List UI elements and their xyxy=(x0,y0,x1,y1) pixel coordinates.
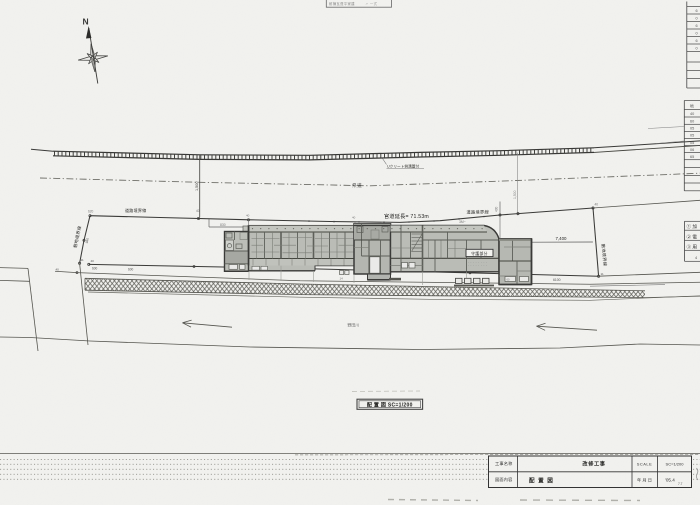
svg-text:60: 60 xyxy=(690,120,694,124)
svg-text:6: 6 xyxy=(696,9,698,13)
svg-text:耐棟瓦葺平家建: 耐棟瓦葺平家建 xyxy=(329,1,355,6)
svg-text:830: 830 xyxy=(220,223,226,227)
svg-text:05: 05 xyxy=(690,134,694,138)
svg-text:SCALE: SCALE xyxy=(637,461,653,466)
svg-text:SC=1/200: SC=1/200 xyxy=(666,462,685,467)
svg-text:道路境界線: 道路境界線 xyxy=(125,207,147,213)
svg-text:40: 40 xyxy=(352,216,356,220)
svg-text:6: 6 xyxy=(696,39,698,43)
svg-text:① 加: ① 加 xyxy=(687,223,698,230)
svg-text:工事名称: 工事名称 xyxy=(495,460,513,467)
svg-text:7.7: 7.7 xyxy=(678,482,683,486)
svg-text:図面内容: 図面内容 xyxy=(495,476,513,483)
svg-text:Uクリート側溝蓋付: Uクリート側溝蓋付 xyxy=(387,164,419,169)
svg-text:3M~: 3M~ xyxy=(459,220,466,224)
svg-text:② 電: ② 電 xyxy=(687,233,698,240)
svg-text:06: 06 xyxy=(690,148,694,152)
svg-text:600: 600 xyxy=(128,268,134,272)
svg-text:6100: 6100 xyxy=(553,278,561,282)
svg-text:430: 430 xyxy=(495,206,499,212)
svg-text:野田川: 野田川 xyxy=(348,322,360,327)
svg-text:05: 05 xyxy=(690,141,694,145)
svg-text:14: 14 xyxy=(340,277,344,281)
svg-text:年 月 日: 年 月 日 xyxy=(637,477,652,484)
svg-text:1,500: 1,500 xyxy=(513,190,517,199)
svg-text:600: 600 xyxy=(92,266,98,270)
svg-text:40: 40 xyxy=(56,267,60,271)
svg-text:配 置 図 SC=1/200: 配 置 図 SC=1/200 xyxy=(367,401,413,408)
svg-text:0: 0 xyxy=(696,32,698,36)
svg-text:'05.4: '05.4 xyxy=(665,477,675,482)
svg-text:40: 40 xyxy=(595,202,599,206)
svg-text:11: 11 xyxy=(81,258,84,262)
svg-text:0: 0 xyxy=(696,47,698,51)
svg-text:05: 05 xyxy=(690,127,694,131)
svg-text:改修工事: 改修工事 xyxy=(582,460,605,468)
svg-text:65: 65 xyxy=(690,155,694,159)
svg-text:県道: 県道 xyxy=(352,182,362,189)
svg-text:守護部分: 守護部分 xyxy=(471,251,488,256)
svg-text:配 置 図: 配 置 図 xyxy=(529,477,554,485)
svg-text:6: 6 xyxy=(696,24,698,28)
svg-text:N: N xyxy=(83,17,89,27)
svg-text:③ 用: ③ 用 xyxy=(687,243,698,250)
svg-text:40: 40 xyxy=(690,112,694,116)
svg-text:道路境界線: 道路境界線 xyxy=(467,209,490,216)
svg-text:11: 11 xyxy=(601,272,604,276)
svg-text:40: 40 xyxy=(246,214,250,218)
svg-text:1,500: 1,500 xyxy=(195,181,199,191)
svg-text:4: 4 xyxy=(695,256,697,260)
svg-text:40: 40 xyxy=(196,209,200,213)
svg-text:・・・・・・・・: ・・・・・・・・ xyxy=(467,265,488,268)
svg-text:0: 0 xyxy=(696,17,698,21)
svg-text:7,400: 7,400 xyxy=(556,236,568,241)
svg-text:620: 620 xyxy=(88,209,94,213)
svg-text:40: 40 xyxy=(91,259,95,263)
svg-text:〃 一式: 〃 一式 xyxy=(365,1,378,6)
svg-text:地: 地 xyxy=(690,104,694,109)
svg-text:官道延長= 71.53m: 官道延長= 71.53m xyxy=(384,212,429,220)
